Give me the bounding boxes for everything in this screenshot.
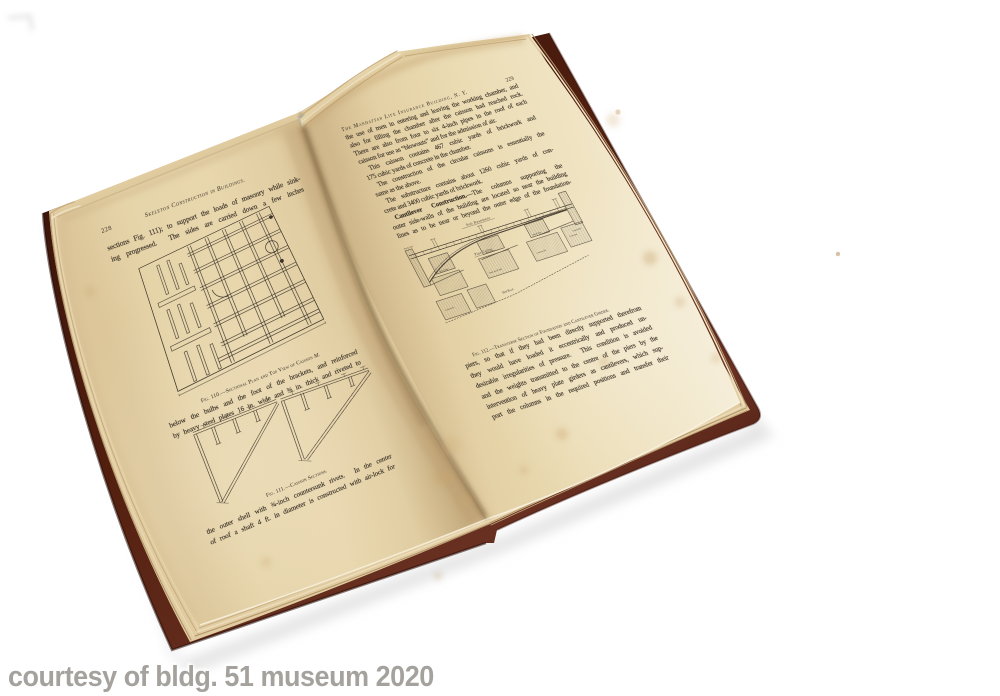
- svg-text:Bed Rock: Bed Rock: [501, 287, 515, 295]
